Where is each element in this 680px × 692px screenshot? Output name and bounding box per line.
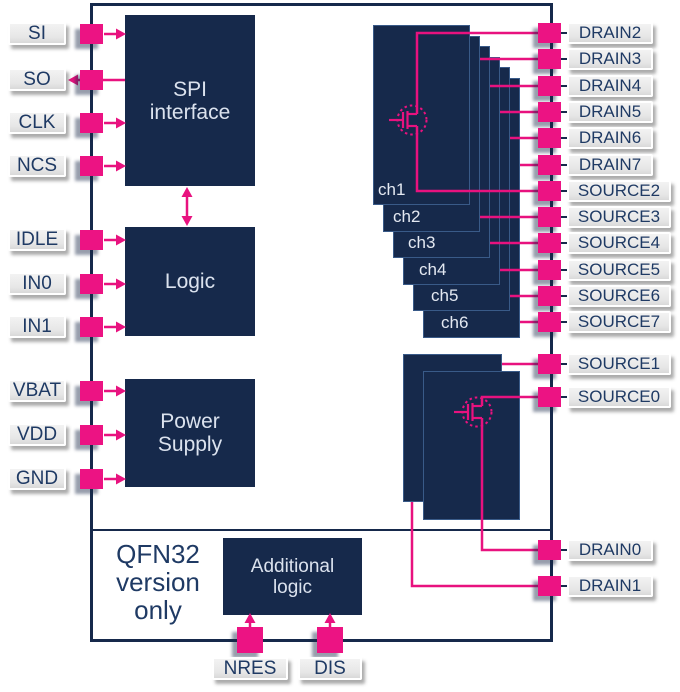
pin-square-drain2: [538, 23, 561, 43]
pin-square-drain7: [538, 155, 561, 175]
pin-square-vbat: [80, 381, 103, 401]
pin-label-drain1: DRAIN1: [567, 575, 653, 597]
pin-square-source2: [538, 181, 561, 201]
pin-square-source7: [538, 312, 561, 332]
pin-label-source1: SOURCE1: [567, 353, 671, 375]
qfn32-note-line2: version: [98, 568, 218, 596]
channel-block-ch1: ch1: [373, 25, 470, 205]
additional-logic-label: Additional: [251, 556, 334, 577]
power-supply-label2: Supply: [158, 433, 222, 456]
additional-logic-block: Additional logic: [223, 538, 362, 615]
pin-square-source4: [538, 233, 561, 253]
pin-square-drain1: [538, 576, 561, 596]
pin-square-source5: [538, 260, 561, 280]
power-supply-block: Power Supply: [125, 379, 255, 487]
pin-label-drain0: DRAIN0: [567, 539, 653, 561]
spi-interface-block: SPI interface: [125, 15, 255, 186]
qfn32-note-line1: QFN32: [98, 540, 218, 568]
pin-square-in1: [80, 317, 103, 337]
pin-label-source4: SOURCE4: [567, 232, 671, 254]
pin-square-so: [80, 70, 103, 90]
output-block-front: [423, 371, 520, 520]
channel-label: ch5: [431, 286, 458, 306]
spi-interface-label2: interface: [150, 101, 231, 124]
pin-label-drain7: DRAIN7: [567, 154, 653, 176]
pin-square-ncs: [80, 156, 103, 176]
pin-label-vdd: VDD: [8, 423, 66, 446]
channel-label: ch4: [419, 260, 446, 280]
pin-label-ncs: NCS: [8, 154, 66, 177]
pin-label-idle: IDLE: [8, 228, 66, 251]
pin-label-source0: SOURCE0: [567, 386, 671, 408]
logic-block: Logic: [125, 227, 255, 336]
pin-square-dis: [317, 627, 343, 653]
pin-square-clk: [80, 113, 103, 133]
block-diagram: SPI interface Logic Power Supply Additio…: [0, 0, 680, 692]
pin-square-idle: [80, 230, 103, 250]
pin-square-vdd: [80, 425, 103, 445]
pin-square-source1: [538, 354, 561, 374]
pin-label-source6: SOURCE6: [567, 285, 671, 307]
pin-label-so: SO: [8, 68, 66, 91]
pin-square-gnd: [80, 469, 103, 489]
pin-label-nres: NRES: [212, 657, 288, 680]
qfn-section-divider: [92, 529, 551, 531]
qfn32-note-line3: only: [98, 596, 218, 624]
pin-label-source7: SOURCE7: [567, 311, 671, 333]
pin-label-drain6: DRAIN6: [567, 127, 653, 149]
pin-label-drain3: DRAIN3: [567, 48, 653, 70]
pin-square-drain3: [538, 49, 561, 69]
power-supply-label: Power: [160, 410, 220, 433]
pin-label-dis: DIS: [298, 657, 362, 680]
qfn32-note: QFN32 version only: [98, 540, 218, 624]
pin-label-in0: IN0: [8, 272, 66, 295]
pin-label-drain4: DRAIN4: [567, 75, 653, 97]
logic-label: Logic: [165, 270, 215, 293]
pin-label-clk: CLK: [8, 111, 66, 134]
pin-square-in0: [80, 274, 103, 294]
pin-square-drain5: [538, 102, 561, 122]
pin-label-source2: SOURCE2: [567, 180, 671, 202]
channel-label: ch6: [441, 313, 468, 333]
pin-square-drain4: [538, 76, 561, 96]
pin-square-drain0: [538, 540, 561, 560]
spi-interface-label: SPI: [173, 78, 207, 101]
pin-label-drain5: DRAIN5: [567, 101, 653, 123]
additional-logic-label2: logic: [273, 577, 312, 598]
pin-square-source0: [538, 387, 561, 407]
pin-label-drain2: DRAIN2: [567, 22, 653, 44]
pin-label-vbat: VBAT: [8, 379, 66, 402]
channel-label: ch2: [393, 207, 420, 227]
pin-label-si: SI: [8, 22, 66, 45]
channel-label: ch3: [408, 233, 435, 253]
pin-square-drain6: [538, 128, 561, 148]
pin-square-source6: [538, 286, 561, 306]
pin-label-gnd: GND: [8, 467, 66, 490]
pin-label-in1: IN1: [8, 315, 66, 338]
pin-square-si: [80, 24, 103, 44]
pin-square-source3: [538, 207, 561, 227]
channel-label: ch1: [378, 180, 405, 200]
pin-square-nres: [237, 627, 263, 653]
pin-label-source5: SOURCE5: [567, 259, 671, 281]
pin-label-source3: SOURCE3: [567, 206, 671, 228]
